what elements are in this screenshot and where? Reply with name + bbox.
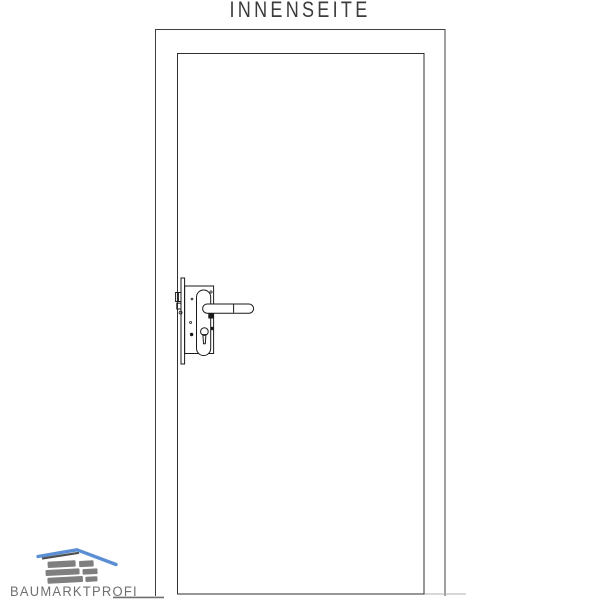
- escutcheon-plate: [197, 290, 211, 356]
- logo-bricks-icon: [45, 559, 98, 584]
- door-leaf: [178, 54, 425, 595]
- logo-graphic: [38, 550, 164, 598]
- lever-handle: [203, 304, 254, 313]
- door-drawing-canvas: BAUMARKTPROFI INNENSEITE: [0, 0, 600, 600]
- technical-drawing: [0, 0, 600, 600]
- screw-hole-icon: [190, 333, 193, 336]
